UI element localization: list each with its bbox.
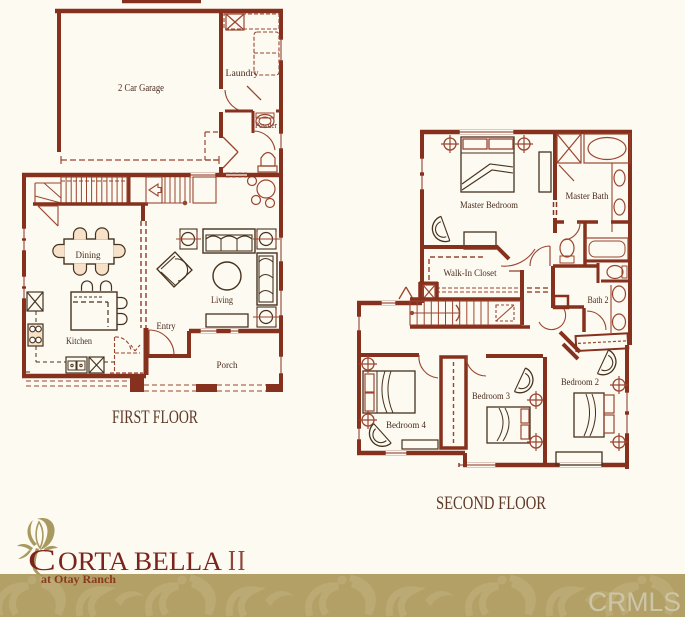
svg-text:Dining: Dining	[76, 251, 101, 261]
svg-text:Bedroom 3: Bedroom 3	[472, 392, 510, 402]
svg-text:Master Bedroom: Master Bedroom	[460, 201, 519, 211]
svg-text:SECOND FLOOR: SECOND FLOOR	[436, 493, 546, 514]
svg-text:Bedroom 2: Bedroom 2	[561, 378, 599, 388]
svg-text:FIRST FLOOR: FIRST FLOOR	[112, 407, 198, 428]
svg-text:Master Bath: Master Bath	[566, 191, 609, 201]
svg-text:Walk-In Closet: Walk-In Closet	[444, 268, 497, 278]
svg-text:at Otay Ranch: at Otay Ranch	[41, 572, 116, 586]
svg-text:Bath 2: Bath 2	[588, 295, 609, 305]
svg-text:II: II	[228, 546, 247, 577]
svg-text:CRMLS: CRMLS	[588, 587, 681, 617]
svg-text:Bedroom 4: Bedroom 4	[386, 421, 426, 431]
svg-text:Porch: Porch	[217, 360, 238, 370]
svg-text:Entry: Entry	[157, 321, 176, 331]
svg-text:2 Car Garage: 2 Car Garage	[118, 83, 164, 94]
svg-text:Living: Living	[211, 296, 233, 306]
svg-text:Kitchen: Kitchen	[66, 337, 92, 347]
